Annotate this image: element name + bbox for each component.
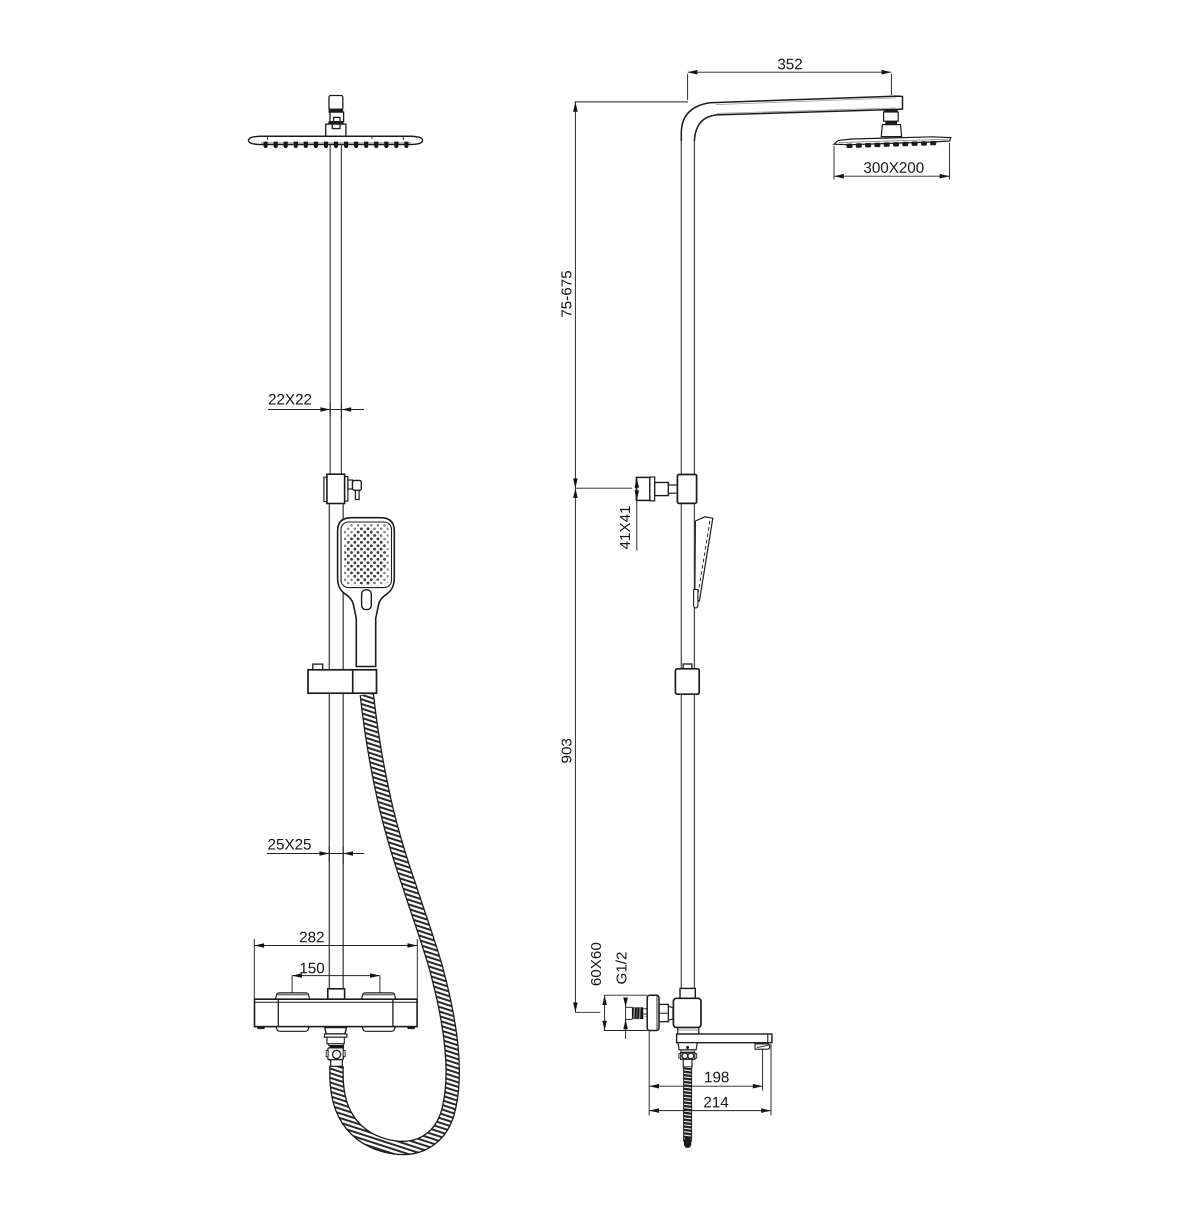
svg-text:300X200: 300X200 (863, 160, 924, 177)
svg-text:22X22: 22X22 (268, 391, 312, 408)
svg-text:903: 903 (559, 738, 576, 763)
svg-text:60X60: 60X60 (588, 942, 605, 986)
svg-text:198: 198 (704, 1069, 729, 1086)
svg-text:G1/2: G1/2 (614, 952, 631, 985)
svg-text:75-675: 75-675 (559, 270, 576, 317)
svg-text:25X25: 25X25 (268, 836, 312, 853)
svg-text:41X41: 41X41 (617, 506, 634, 550)
svg-text:352: 352 (777, 56, 802, 73)
svg-text:150: 150 (299, 960, 324, 977)
svg-text:282: 282 (299, 929, 324, 946)
svg-text:214: 214 (703, 1094, 728, 1111)
